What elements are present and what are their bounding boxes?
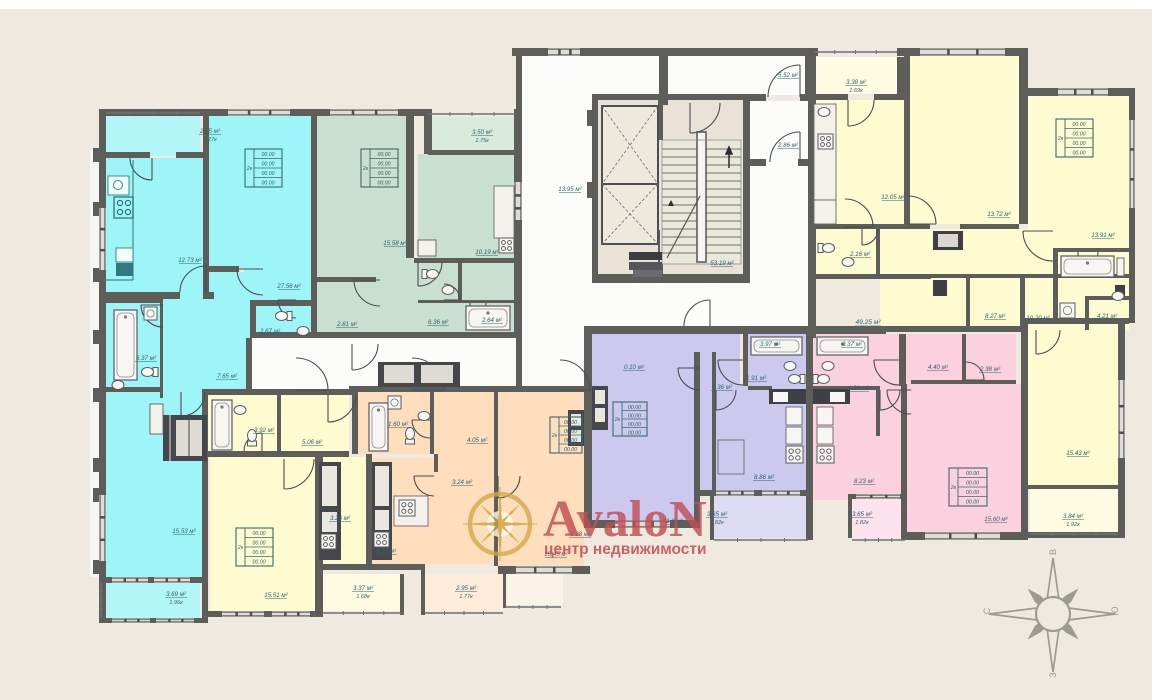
- svg-text:центр недвижимости: центр недвижимости: [544, 541, 707, 558]
- svg-text:3.50 м²: 3.50 м²: [472, 129, 493, 136]
- svg-text:00.00: 00.00: [966, 481, 979, 487]
- svg-text:2к: 2к: [362, 166, 369, 172]
- svg-text:3.26 м²: 3.26 м²: [330, 515, 351, 522]
- svg-text:9.26 м²: 9.26 м²: [376, 548, 397, 555]
- svg-text:0.10 м²: 0.10 м²: [624, 364, 645, 371]
- svg-text:1.82к: 1.82к: [855, 520, 869, 526]
- svg-text:00.00: 00.00: [966, 490, 979, 496]
- svg-text:13.91 м²: 13.91 м²: [1091, 232, 1115, 239]
- svg-text:15.53 м²: 15.53 м²: [172, 528, 196, 535]
- svg-text:00.00: 00.00: [1073, 151, 1086, 157]
- svg-text:3.37 м²: 3.37 м²: [842, 341, 863, 348]
- svg-text:00.00: 00.00: [1073, 132, 1086, 138]
- svg-text:00.00: 00.00: [966, 471, 979, 477]
- svg-text:2.38 м²: 2.38 м²: [979, 366, 1001, 373]
- svg-text:1.91 м²: 1.91 м²: [746, 375, 767, 382]
- svg-text:В: В: [1048, 549, 1058, 555]
- svg-text:3.37 м²: 3.37 м²: [353, 585, 374, 592]
- svg-text:00.00: 00.00: [378, 181, 391, 187]
- svg-text:6.37 м²: 6.37 м²: [136, 355, 157, 362]
- svg-text:00.00: 00.00: [378, 171, 391, 177]
- svg-text:1.60 м²: 1.60 м²: [388, 421, 409, 428]
- svg-text:8.27 м²: 8.27 м²: [985, 313, 1006, 320]
- svg-text:2к: 2к: [246, 166, 253, 172]
- svg-text:3.97 м²: 3.97 м²: [760, 341, 781, 348]
- svg-text:З: З: [1048, 672, 1058, 677]
- svg-text:3.38 м²: 3.38 м²: [846, 79, 867, 86]
- svg-text:2.55 м²: 2.55 м²: [199, 128, 221, 135]
- svg-text:13.72 м²: 13.72 м²: [987, 211, 1011, 218]
- svg-text:4.05 м²: 4.05 м²: [467, 437, 488, 444]
- svg-text:00.00: 00.00: [262, 162, 275, 168]
- svg-text:2к: 2к: [551, 433, 558, 439]
- svg-text:1.69к: 1.69к: [849, 88, 863, 94]
- svg-text:00.00: 00.00: [564, 429, 577, 435]
- svg-text:1.92к: 1.92к: [1066, 522, 1080, 528]
- svg-text:7.65 м²: 7.65 м²: [217, 373, 238, 380]
- svg-text:27.56 м²: 27.56 м²: [276, 283, 301, 290]
- svg-text:1.75к: 1.75к: [475, 138, 489, 144]
- svg-text:2к: 2к: [237, 545, 244, 551]
- svg-text:1.82к: 1.82к: [710, 520, 724, 526]
- svg-text:00.00: 00.00: [564, 447, 577, 453]
- svg-text:5.52 м²: 5.52 м²: [778, 72, 799, 79]
- svg-text:4.21 м²: 4.21 м²: [1097, 313, 1118, 320]
- svg-text:15.51 м²: 15.51 м²: [264, 592, 288, 599]
- svg-text:00.00: 00.00: [628, 414, 641, 420]
- svg-text:00.00: 00.00: [628, 405, 641, 411]
- svg-text:2.95 м²: 2.95 м²: [455, 585, 477, 592]
- svg-text:13.95 м²: 13.95 м²: [558, 186, 582, 193]
- svg-text:15.60 м²: 15.60 м²: [984, 516, 1008, 523]
- svg-text:00.00: 00.00: [564, 420, 577, 426]
- svg-text:2к: 2к: [950, 485, 957, 491]
- svg-text:2к: 2к: [1057, 136, 1064, 142]
- svg-text:00.00: 00.00: [378, 152, 391, 158]
- svg-text:С: С: [982, 607, 992, 614]
- svg-text:2.86 м²: 2.86 м²: [777, 142, 799, 149]
- svg-text:6.36 м²: 6.36 м²: [428, 319, 449, 326]
- svg-text:00.00: 00.00: [262, 171, 275, 177]
- svg-text:00.00: 00.00: [253, 531, 266, 537]
- svg-text:15.58 м²: 15.58 м²: [383, 240, 407, 247]
- svg-text:3.65 м²: 3.65 м²: [707, 511, 728, 518]
- svg-text:00.00: 00.00: [966, 500, 979, 506]
- svg-text:00.00: 00.00: [253, 550, 266, 556]
- svg-text:00.00: 00.00: [1073, 122, 1086, 128]
- svg-text:1.27к: 1.27к: [203, 137, 217, 143]
- svg-text:00.00: 00.00: [564, 438, 577, 444]
- svg-text:15.43 м²: 15.43 м²: [1066, 450, 1090, 457]
- svg-text:12.05 м²: 12.05 м²: [881, 194, 905, 201]
- svg-text:49.25 м²: 49.25 м²: [855, 319, 881, 326]
- svg-text:2.64 м²: 2.64 м²: [481, 317, 503, 324]
- svg-text:1.91 м²: 1.91 м²: [848, 385, 869, 392]
- svg-text:3.69 м²: 3.69 м²: [166, 591, 187, 598]
- svg-text:00.00: 00.00: [628, 422, 641, 428]
- svg-text:00.00: 00.00: [253, 560, 266, 566]
- svg-text:2.81 м²: 2.81 м²: [336, 321, 358, 328]
- svg-text:00.00: 00.00: [253, 541, 266, 547]
- svg-text:00.00: 00.00: [628, 431, 641, 437]
- svg-text:2.67 м²: 2.67 м²: [259, 328, 281, 335]
- svg-text:8.86 м²: 8.86 м²: [754, 474, 775, 481]
- svg-text:00.00: 00.00: [262, 181, 275, 187]
- svg-text:3.92 м²: 3.92 м²: [254, 427, 275, 434]
- svg-text:8.23 м²: 8.23 м²: [854, 478, 875, 485]
- svg-text:00.00: 00.00: [1073, 141, 1086, 147]
- svg-text:10.20 м²: 10.20 м²: [1026, 315, 1050, 322]
- svg-text:12.73 м²: 12.73 м²: [178, 257, 202, 264]
- svg-text:4.40 м²: 4.40 м²: [928, 364, 949, 371]
- svg-text:2.16 м²: 2.16 м²: [849, 251, 871, 258]
- svg-text:6.36 м²: 6.36 м²: [712, 384, 733, 391]
- svg-text:AvaloN: AvaloN: [543, 491, 707, 548]
- svg-text:5.06 м²: 5.06 м²: [302, 439, 323, 446]
- svg-text:3.65 м²: 3.65 м²: [852, 511, 873, 518]
- svg-text:1.68к: 1.68к: [356, 594, 370, 600]
- svg-text:1.77к: 1.77к: [459, 594, 473, 600]
- svg-text:3.84 м²: 3.84 м²: [1063, 513, 1084, 520]
- svg-text:00.00: 00.00: [378, 162, 391, 168]
- svg-text:Ю: Ю: [1110, 606, 1120, 615]
- svg-text:1.96к: 1.96к: [169, 600, 183, 606]
- svg-text:3.24 м²: 3.24 м²: [452, 479, 473, 486]
- svg-text:10.19 м²: 10.19 м²: [475, 249, 499, 256]
- svg-text:00.00: 00.00: [262, 152, 275, 158]
- svg-text:53.19 м²: 53.19 м²: [710, 260, 734, 267]
- svg-text:2к: 2к: [614, 417, 621, 423]
